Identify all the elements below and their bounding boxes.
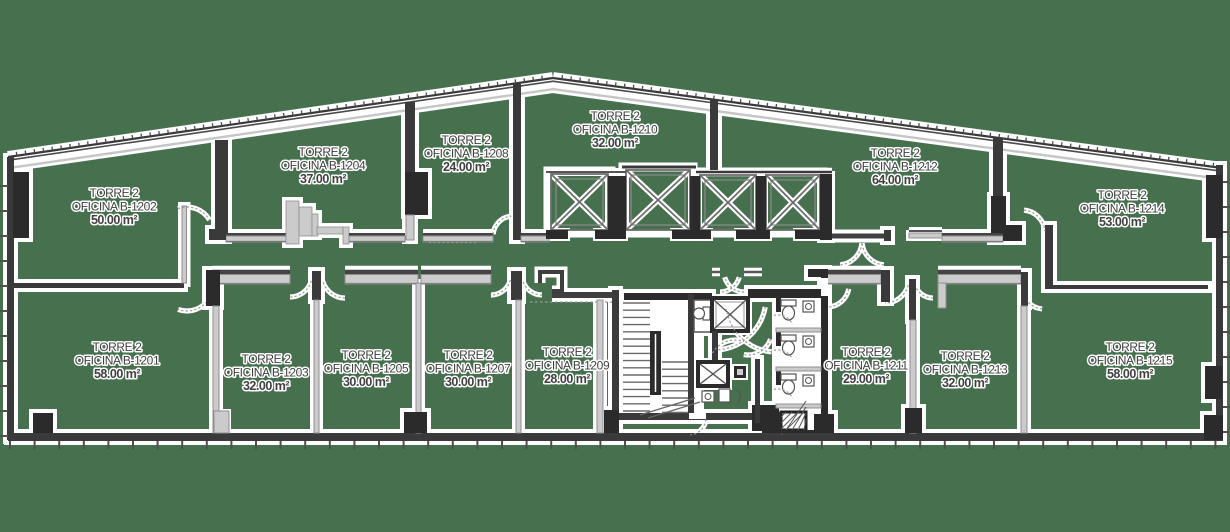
svg-text:TORRE 2: TORRE 2 (941, 349, 991, 363)
svg-text:TORRE 2: TORRE 2 (871, 146, 921, 160)
svg-text:OFICINA B-1210: OFICINA B-1210 (573, 123, 658, 137)
svg-text:58.00 m²: 58.00 m² (94, 367, 140, 381)
svg-text:TORRE 2: TORRE 2 (342, 348, 392, 362)
svg-text:OFICINA B-1213: OFICINA B-1213 (923, 363, 1008, 377)
svg-text:OFICINA B-1205: OFICINA B-1205 (324, 362, 409, 376)
svg-text:OFICINA B-1207: OFICINA B-1207 (426, 362, 511, 376)
svg-text:OFICINA B-1212: OFICINA B-1212 (853, 160, 938, 174)
svg-text:OFICINA B-1201: OFICINA B-1201 (75, 354, 160, 368)
svg-text:32.00 m²: 32.00 m² (243, 379, 289, 393)
svg-text:OFICINA B-1209: OFICINA B-1209 (525, 359, 610, 373)
svg-text:TORRE 2: TORRE 2 (242, 352, 292, 366)
svg-text:29.00 m²: 29.00 m² (843, 372, 889, 386)
svg-text:TORRE 2: TORRE 2 (842, 345, 892, 359)
svg-text:OFICINA B-1203: OFICINA B-1203 (224, 366, 309, 380)
svg-text:TORRE 2: TORRE 2 (543, 345, 593, 359)
svg-text:TORRE 2: TORRE 2 (90, 186, 140, 200)
svg-text:24.00 m²: 24.00 m² (443, 160, 489, 174)
svg-text:TORRE 2: TORRE 2 (1098, 188, 1148, 202)
svg-text:32.00 m²: 32.00 m² (592, 136, 638, 150)
svg-text:OFICINA B-1214: OFICINA B-1214 (1080, 202, 1165, 216)
svg-text:64.00 m²: 64.00 m² (872, 173, 918, 187)
svg-text:OFICINA B-1202: OFICINA B-1202 (72, 200, 157, 214)
svg-text:TORRE 2: TORRE 2 (442, 133, 492, 147)
svg-text:30.00 m²: 30.00 m² (445, 375, 491, 389)
svg-text:53.00 m²: 53.00 m² (1099, 215, 1145, 229)
svg-text:OFICINA B-1211: OFICINA B-1211 (824, 359, 908, 373)
svg-text:TORRE 2: TORRE 2 (93, 340, 143, 354)
svg-text:TORRE 2: TORRE 2 (591, 109, 641, 123)
svg-text:OFICINA B-1204: OFICINA B-1204 (281, 159, 366, 173)
svg-text:TORRE 2: TORRE 2 (299, 145, 349, 159)
svg-text:37.00 m²: 37.00 m² (300, 172, 346, 186)
svg-text:TORRE 2: TORRE 2 (1106, 340, 1156, 354)
svg-text:50.00 m²: 50.00 m² (91, 213, 137, 227)
svg-text:OFICINA B-1215: OFICINA B-1215 (1088, 354, 1173, 368)
svg-text:32.00 m²: 32.00 m² (942, 376, 988, 390)
svg-text:TORRE 2: TORRE 2 (444, 348, 494, 362)
svg-text:30.00 m²: 30.00 m² (343, 375, 389, 389)
svg-text:28.00 m²: 28.00 m² (544, 372, 590, 386)
svg-text:58.00 m²: 58.00 m² (1107, 367, 1153, 381)
svg-text:OFICINA B-1208: OFICINA B-1208 (424, 147, 509, 161)
